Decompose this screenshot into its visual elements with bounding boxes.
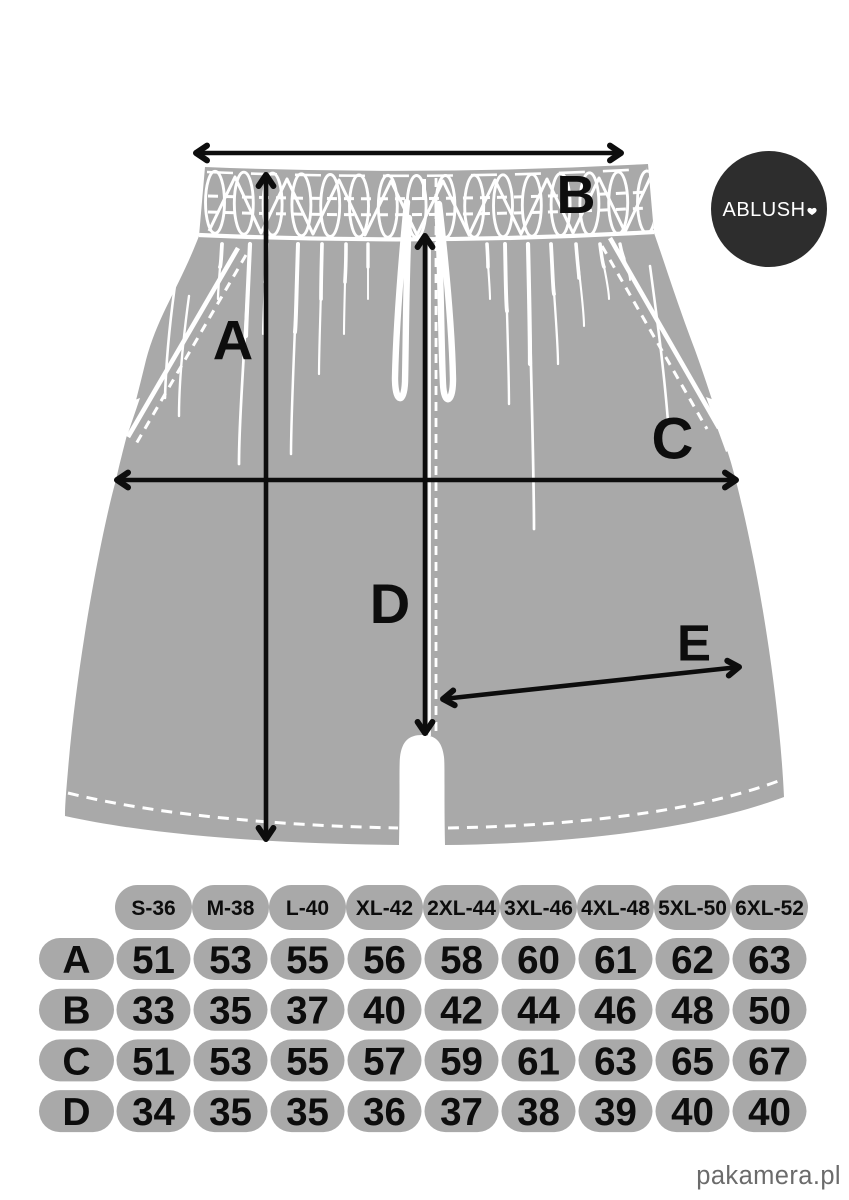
svg-text:B: B	[62, 990, 90, 1033]
svg-text:58: 58	[440, 939, 483, 982]
svg-text:53: 53	[209, 939, 252, 982]
svg-text:D: D	[370, 572, 410, 635]
svg-text:35: 35	[209, 1091, 252, 1134]
svg-text:34: 34	[132, 1091, 175, 1134]
svg-text:61: 61	[517, 1040, 560, 1083]
svg-text:37: 37	[440, 1091, 483, 1134]
svg-text:51: 51	[132, 939, 175, 982]
svg-text:40: 40	[748, 1091, 791, 1134]
svg-text:40: 40	[671, 1091, 714, 1134]
svg-text:37: 37	[286, 990, 329, 1033]
svg-text:60: 60	[517, 939, 560, 982]
svg-text:L-40: L-40	[286, 897, 329, 920]
svg-text:ABLUSH: ABLUSH	[722, 199, 805, 221]
svg-text:57: 57	[363, 1040, 406, 1083]
svg-text:B: B	[557, 165, 596, 225]
svg-text:59: 59	[440, 1040, 483, 1083]
svg-text:5XL-50: 5XL-50	[658, 897, 727, 920]
svg-text:42: 42	[440, 990, 483, 1033]
svg-text:46: 46	[594, 990, 637, 1033]
svg-text:62: 62	[671, 939, 714, 982]
svg-text:6XL-52: 6XL-52	[735, 897, 804, 920]
svg-text:39: 39	[594, 1091, 637, 1134]
svg-text:D: D	[62, 1091, 90, 1134]
svg-text:53: 53	[209, 1040, 252, 1083]
svg-text:A: A	[213, 309, 253, 372]
svg-text:3XL-46: 3XL-46	[504, 897, 573, 920]
svg-text:61: 61	[594, 939, 637, 982]
svg-text:C: C	[652, 407, 694, 472]
svg-text:40: 40	[363, 990, 406, 1033]
svg-text:50: 50	[748, 990, 791, 1033]
svg-text:55: 55	[286, 939, 329, 982]
svg-text:4XL-48: 4XL-48	[581, 897, 650, 920]
svg-text:XL-42: XL-42	[356, 897, 413, 920]
svg-text:51: 51	[132, 1040, 175, 1083]
svg-text:65: 65	[671, 1040, 714, 1083]
svg-text:44: 44	[517, 990, 560, 1033]
svg-text:pakamera.pl: pakamera.pl	[696, 1162, 841, 1190]
svg-text:67: 67	[748, 1040, 791, 1083]
svg-text:48: 48	[671, 990, 714, 1033]
svg-text:38: 38	[517, 1091, 560, 1134]
svg-text:S-36: S-36	[131, 897, 175, 920]
svg-text:A: A	[62, 939, 90, 982]
svg-text:2XL-44: 2XL-44	[427, 897, 496, 920]
svg-text:33: 33	[132, 990, 175, 1033]
svg-text:M-38: M-38	[207, 897, 255, 920]
svg-text:36: 36	[363, 1091, 406, 1134]
svg-text:56: 56	[363, 939, 406, 982]
svg-text:35: 35	[209, 990, 252, 1033]
svg-text:E: E	[677, 615, 711, 672]
svg-text:63: 63	[594, 1040, 637, 1083]
svg-text:C: C	[62, 1040, 90, 1083]
svg-text:35: 35	[286, 1091, 329, 1134]
svg-text:63: 63	[748, 939, 791, 982]
svg-text:55: 55	[286, 1040, 329, 1083]
